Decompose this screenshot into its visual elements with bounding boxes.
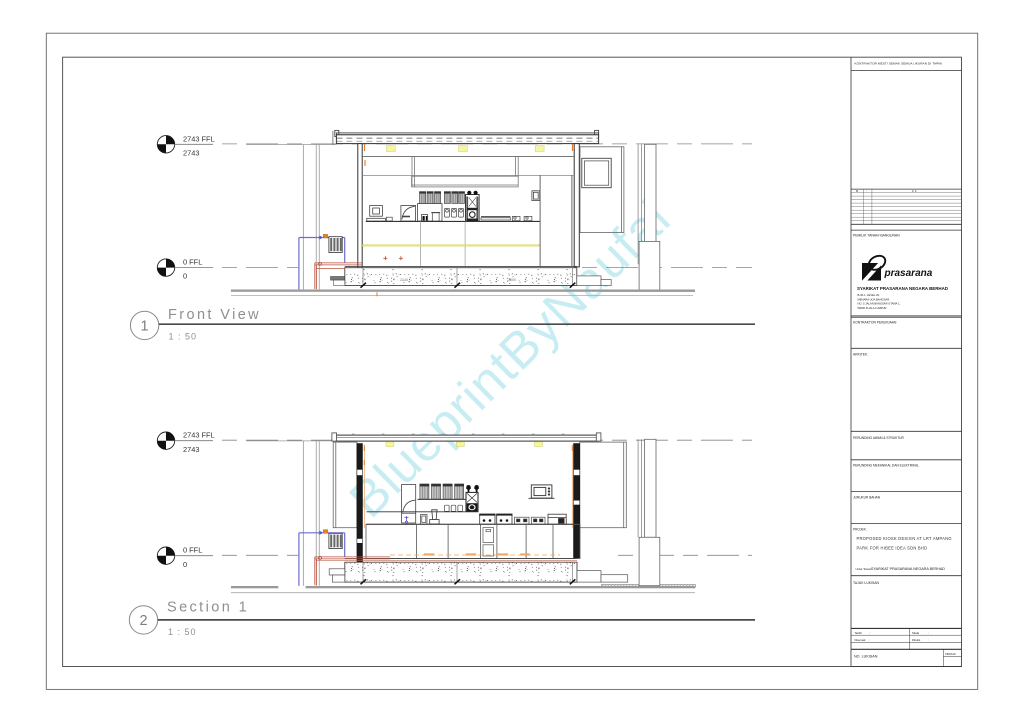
svg-text:2743 FFL: 2743 FFL bbox=[183, 431, 215, 440]
svg-text:Front View: Front View bbox=[168, 307, 261, 323]
svg-text:PINDAAN: PINDAAN bbox=[945, 653, 956, 656]
svg-text:Disemak: Disemak bbox=[855, 638, 866, 642]
svg-text:0: 0 bbox=[183, 560, 187, 569]
svg-text:PEMILIK TANAH/ BANGUNAN: PEMILIK TANAH/ BANGUNAN bbox=[853, 234, 900, 238]
svg-text:prasarana: prasarana bbox=[884, 268, 933, 279]
svg-text:Tarikh: Tarikh bbox=[855, 631, 863, 635]
svg-text:1 : 50: 1 : 50 bbox=[169, 332, 198, 342]
svg-text:2140: 2140 bbox=[400, 278, 408, 282]
svg-text:PERUNDING MEKANIKAL DAN ELEKTR: PERUNDING MEKANIKAL DAN ELEKTRIKAL bbox=[853, 463, 919, 467]
svg-text:0: 0 bbox=[183, 272, 187, 281]
svg-text:Skala: Skala bbox=[912, 631, 919, 635]
svg-text:Untuk Tetuan:: Untuk Tetuan: bbox=[856, 567, 873, 571]
svg-text:b. b: b. b bbox=[912, 189, 917, 193]
svg-text:ARKITEK:: ARKITEK: bbox=[853, 352, 868, 356]
svg-text:0 FFL: 0 FFL bbox=[183, 546, 202, 555]
svg-text:KONTRAKTOR MESTI SEMAK SEMUA U: KONTRAKTOR MESTI SEMAK SEMUA UKURAN DI T… bbox=[855, 62, 944, 66]
svg-text:SYARIKAT PRASARANA NEGARA BERH: SYARIKAT PRASARANA NEGARA BERHAD bbox=[857, 286, 948, 291]
svg-text:2600: 2600 bbox=[508, 278, 516, 282]
svg-text:B-20-1, LEVEL 20,: B-20-1, LEVEL 20, bbox=[858, 293, 881, 297]
svg-text:1 : 50: 1 : 50 bbox=[168, 627, 197, 637]
svg-text:PERUNDING AWAM & STRUKTUR: PERUNDING AWAM & STRUKTUR bbox=[853, 436, 904, 440]
svg-text:2: 2 bbox=[139, 613, 147, 629]
svg-text:2743 FFL: 2743 FFL bbox=[183, 134, 215, 143]
svg-text:JURUKUR BAHAN: JURUKUR BAHAN bbox=[853, 496, 881, 500]
svg-text:KONTRAKTOR PEKERJAAN: KONTRAKTOR PEKERJAAN bbox=[853, 321, 897, 325]
svg-text:M: M bbox=[856, 189, 858, 193]
svg-text:SYARIKAT PRASARANA NEGARA B: SYARIKAT PRASARANA NEGARA BERHAD bbox=[871, 567, 945, 571]
svg-text:2743: 2743 bbox=[183, 148, 199, 157]
svg-text:PROJEK:: PROJEK: bbox=[853, 528, 867, 532]
svg-text:TAJUK LUKISAN: TAJUK LUKISAN bbox=[853, 581, 879, 585]
svg-text:PARK FOR HIBEE IDEA SDN BHD: PARK FOR HIBEE IDEA SDN BHD bbox=[857, 545, 928, 550]
svg-text:Dilukis: Dilukis bbox=[912, 638, 921, 642]
svg-text:0 FFL: 0 FFL bbox=[183, 258, 202, 267]
svg-text:1: 1 bbox=[141, 318, 149, 334]
svg-text:MENARA UOA BANGSAR,: MENARA UOA BANGSAR, bbox=[858, 297, 891, 301]
svg-text:Section 1: Section 1 bbox=[167, 600, 249, 616]
svg-text:59000 KUALA LUMPUR: 59000 KUALA LUMPUR bbox=[858, 306, 887, 310]
svg-text:NO. 5 JALAN BANGSAR UTAMA 1,: NO. 5 JALAN BANGSAR UTAMA 1, bbox=[858, 302, 901, 306]
svg-text:PROPOSED KIOSK DESIGN AT LRT A: PROPOSED KIOSK DESIGN AT LRT AMPANG bbox=[857, 536, 952, 541]
svg-text:NO. LUKISAN: NO. LUKISAN bbox=[854, 655, 878, 659]
svg-text:2743: 2743 bbox=[183, 445, 199, 454]
